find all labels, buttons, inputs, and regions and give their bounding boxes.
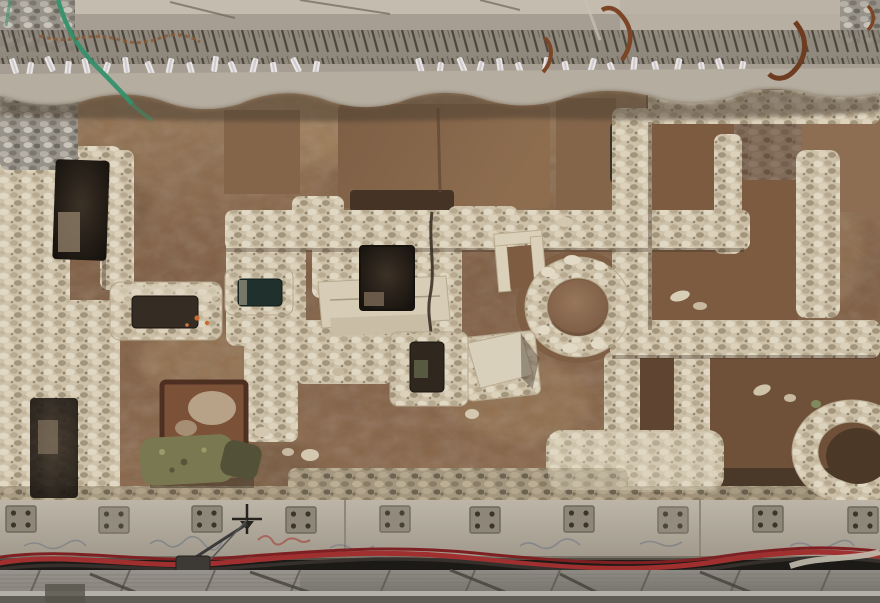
room-b-seam <box>438 108 440 192</box>
bright-rubble-patch <box>548 432 722 490</box>
room-b-shadow-band <box>350 190 454 212</box>
pedestal <box>461 330 543 402</box>
excavation-photo <box>0 0 880 603</box>
deck-dark-patch <box>45 584 85 603</box>
stone-trough <box>110 282 222 340</box>
central-pit <box>360 246 414 310</box>
excavation-site <box>0 80 880 512</box>
left-sunken-room <box>52 159 109 261</box>
small-basin <box>225 269 293 315</box>
top-concrete-beam <box>0 0 880 122</box>
deck-bottom-dark <box>0 596 880 603</box>
upper-room-a <box>224 110 300 194</box>
left-lower-recess <box>30 398 78 498</box>
metal-decking <box>0 570 880 603</box>
slot-basin <box>390 332 468 406</box>
excavation-photo-svg <box>0 0 880 603</box>
rebar-spikes <box>0 30 880 64</box>
bottom-structure <box>0 500 880 603</box>
deck-rail <box>0 591 880 596</box>
orange-fleck <box>194 315 199 320</box>
